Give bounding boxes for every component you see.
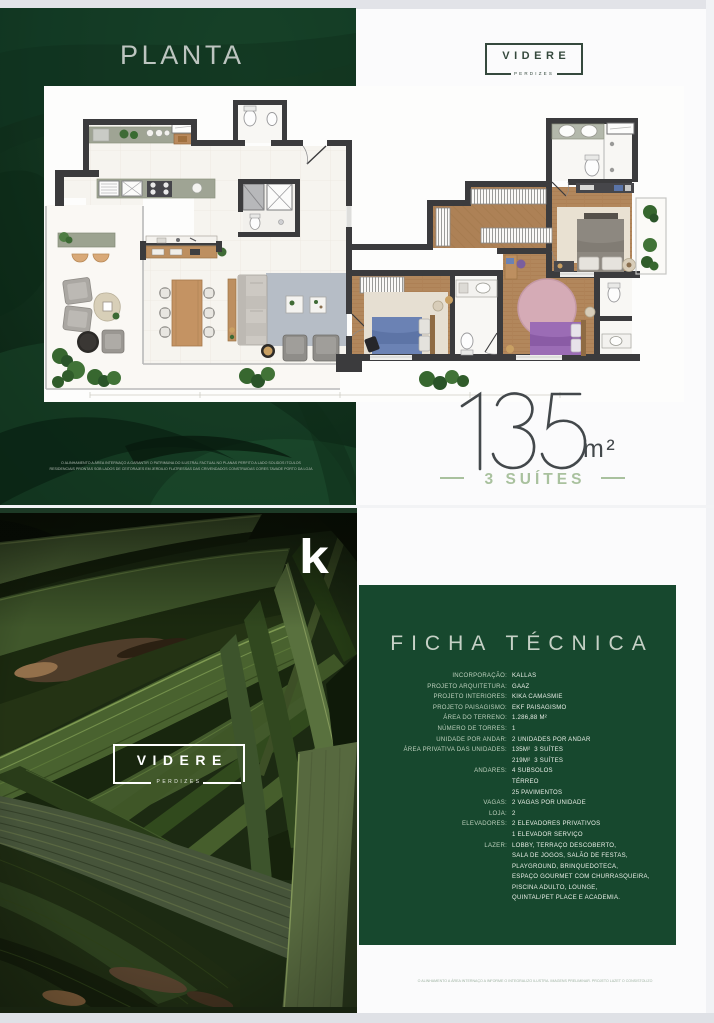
svg-text:m²: m²: [583, 435, 617, 463]
